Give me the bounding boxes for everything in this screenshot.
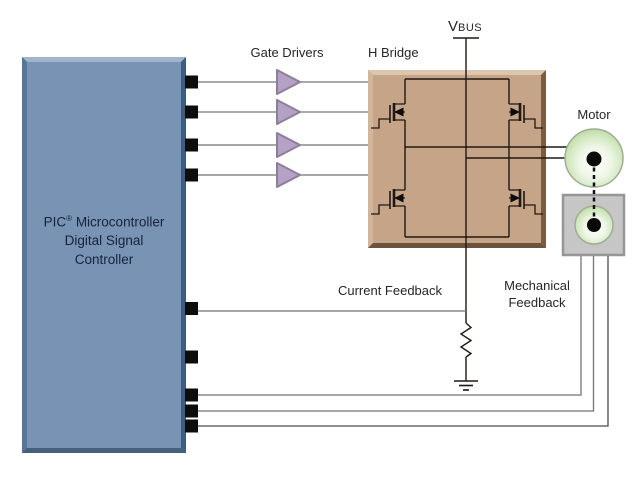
h-bridge-label: H Bridge [368,45,419,60]
pin [185,106,198,119]
microcontroller-label-line3: Controller [26,251,182,270]
vbus-label: VBUS [448,18,482,36]
motor-label: Motor [558,107,630,122]
pin [185,169,198,182]
motor-shaft-dot [587,152,602,167]
mechanical-feedback-line2: Feedback [486,294,588,311]
pwm-wires [198,82,368,175]
pin [185,302,198,315]
gate-driver-buffers [277,70,300,187]
pin [185,351,198,364]
microcontroller-label: PIC® Microcontroller Digital Signal Cont… [26,210,182,269]
mech-feedback-wire-1 [198,255,581,395]
microcontroller-label-line1: PIC® Microcontroller [26,210,182,232]
pin [185,420,198,433]
sensor-shaft-dot [587,218,601,232]
pin [185,139,198,152]
ground-icon [454,381,478,390]
mechanical-feedback-label: Mechanical Feedback [486,277,588,311]
pin [185,76,198,89]
vbus-label-main: V [448,18,458,35]
h-bridge-block [368,70,546,248]
gate-driver-buffer-icon [277,163,300,187]
current-feedback-label: Current Feedback [318,283,462,298]
controller-pins [185,76,198,433]
gate-driver-buffer-icon [277,70,300,94]
microcontroller-label-line2: Digital Signal [26,232,182,251]
pin [185,389,198,402]
vbus-label-subscript: BUS [458,22,482,34]
gate-driver-buffer-icon [277,133,300,157]
shunt-resistor-icon [461,323,471,381]
pin [185,405,198,418]
motor-control-block-diagram: Gate Drivers H Bridge VBUS Motor Current… [0,0,640,480]
gate-driver-buffer-icon [277,100,300,124]
gate-drivers-label: Gate Drivers [235,45,339,60]
mechanical-feedback-line1: Mechanical [486,277,588,294]
